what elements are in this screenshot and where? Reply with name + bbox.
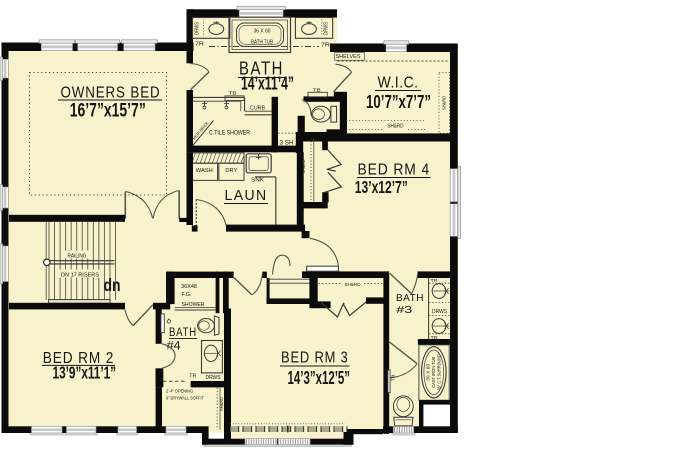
svg-text:DRWS: DRWS [206,375,222,381]
svg-text:TB: TB [391,375,396,382]
svg-text:BATH: BATH [396,292,424,304]
svg-text:7R: 7R [195,42,204,48]
svg-text:2’-4” OPENING: 2’-4” OPENING [166,388,193,394]
svg-text:dn: dn [104,275,121,295]
svg-text:C.TILE SHOWER: C.TILE SHOWER [209,131,251,137]
svg-text:TR: TR [189,374,196,380]
svg-text:16’7”x15’7”: 16’7”x15’7” [70,100,146,122]
svg-text:DRWS: DRWS [324,21,330,35]
svg-text:SH&RD: SH&RD [345,282,362,288]
svg-text:TB: TB [229,90,237,96]
svg-text:CURB: CURB [250,105,265,111]
svg-text:13’9”x11’1”: 13’9”x11’1” [53,362,117,382]
svg-text:SH&RD: SH&RD [219,396,224,411]
svg-text:10’7”x7’7”: 10’7”x7’7” [366,92,431,112]
svg-text:36 X 60: 36 X 60 [254,29,271,35]
svg-text:13’x12’7”: 13’x12’7” [355,177,408,197]
svg-text:DN 17 RISERS: DN 17 RISERS [61,272,99,278]
svg-text:SH&RD: SH&RD [442,95,447,110]
svg-text:36X48: 36X48 [181,284,197,290]
svg-text:14’3”x12’5”: 14’3”x12’5” [288,368,351,388]
svg-text:60” C.T. SURROUND: 60” C.T. SURROUND [436,354,441,390]
svg-text:SH&RD: SH&RD [388,124,404,130]
svg-text:6” DRYWALL SOFFIT: 6” DRYWALL SOFFIT [166,395,204,401]
svg-text:SH&RD: SH&RD [301,159,306,174]
svg-text:TR: TR [431,278,439,284]
svg-text:LAUN: LAUN [225,187,268,204]
svg-text:RAILING: RAILING [68,254,87,260]
svg-text:BED RM 3: BED RM 3 [281,350,349,367]
svg-text:CAST IRON TUB: CAST IRON TUB [431,357,436,388]
svg-text:DRWS: DRWS [194,21,200,35]
svg-text:3 SH: 3 SH [280,140,294,146]
svg-text:TB: TB [313,87,321,93]
svg-text:BATH: BATH [169,327,197,339]
svg-text:30 X 60: 30 X 60 [425,363,430,381]
svg-text:SHELVES: SHELVES [336,54,361,60]
svg-text:DRY: DRY [225,168,237,174]
svg-text:SNK: SNK [251,178,264,184]
svg-text:F.G.: F.G. [182,292,192,298]
svg-text:#3: #3 [396,304,412,316]
svg-text:DRWS: DRWS [432,309,448,315]
svg-text:7R: 7R [321,43,330,49]
svg-text:WASH: WASH [196,168,213,174]
svg-text:14’x11’4”: 14’x11’4” [241,74,294,94]
svg-text:BATH TUB: BATH TUB [251,40,274,46]
svg-text:W.I.C.: W.I.C. [378,75,419,92]
